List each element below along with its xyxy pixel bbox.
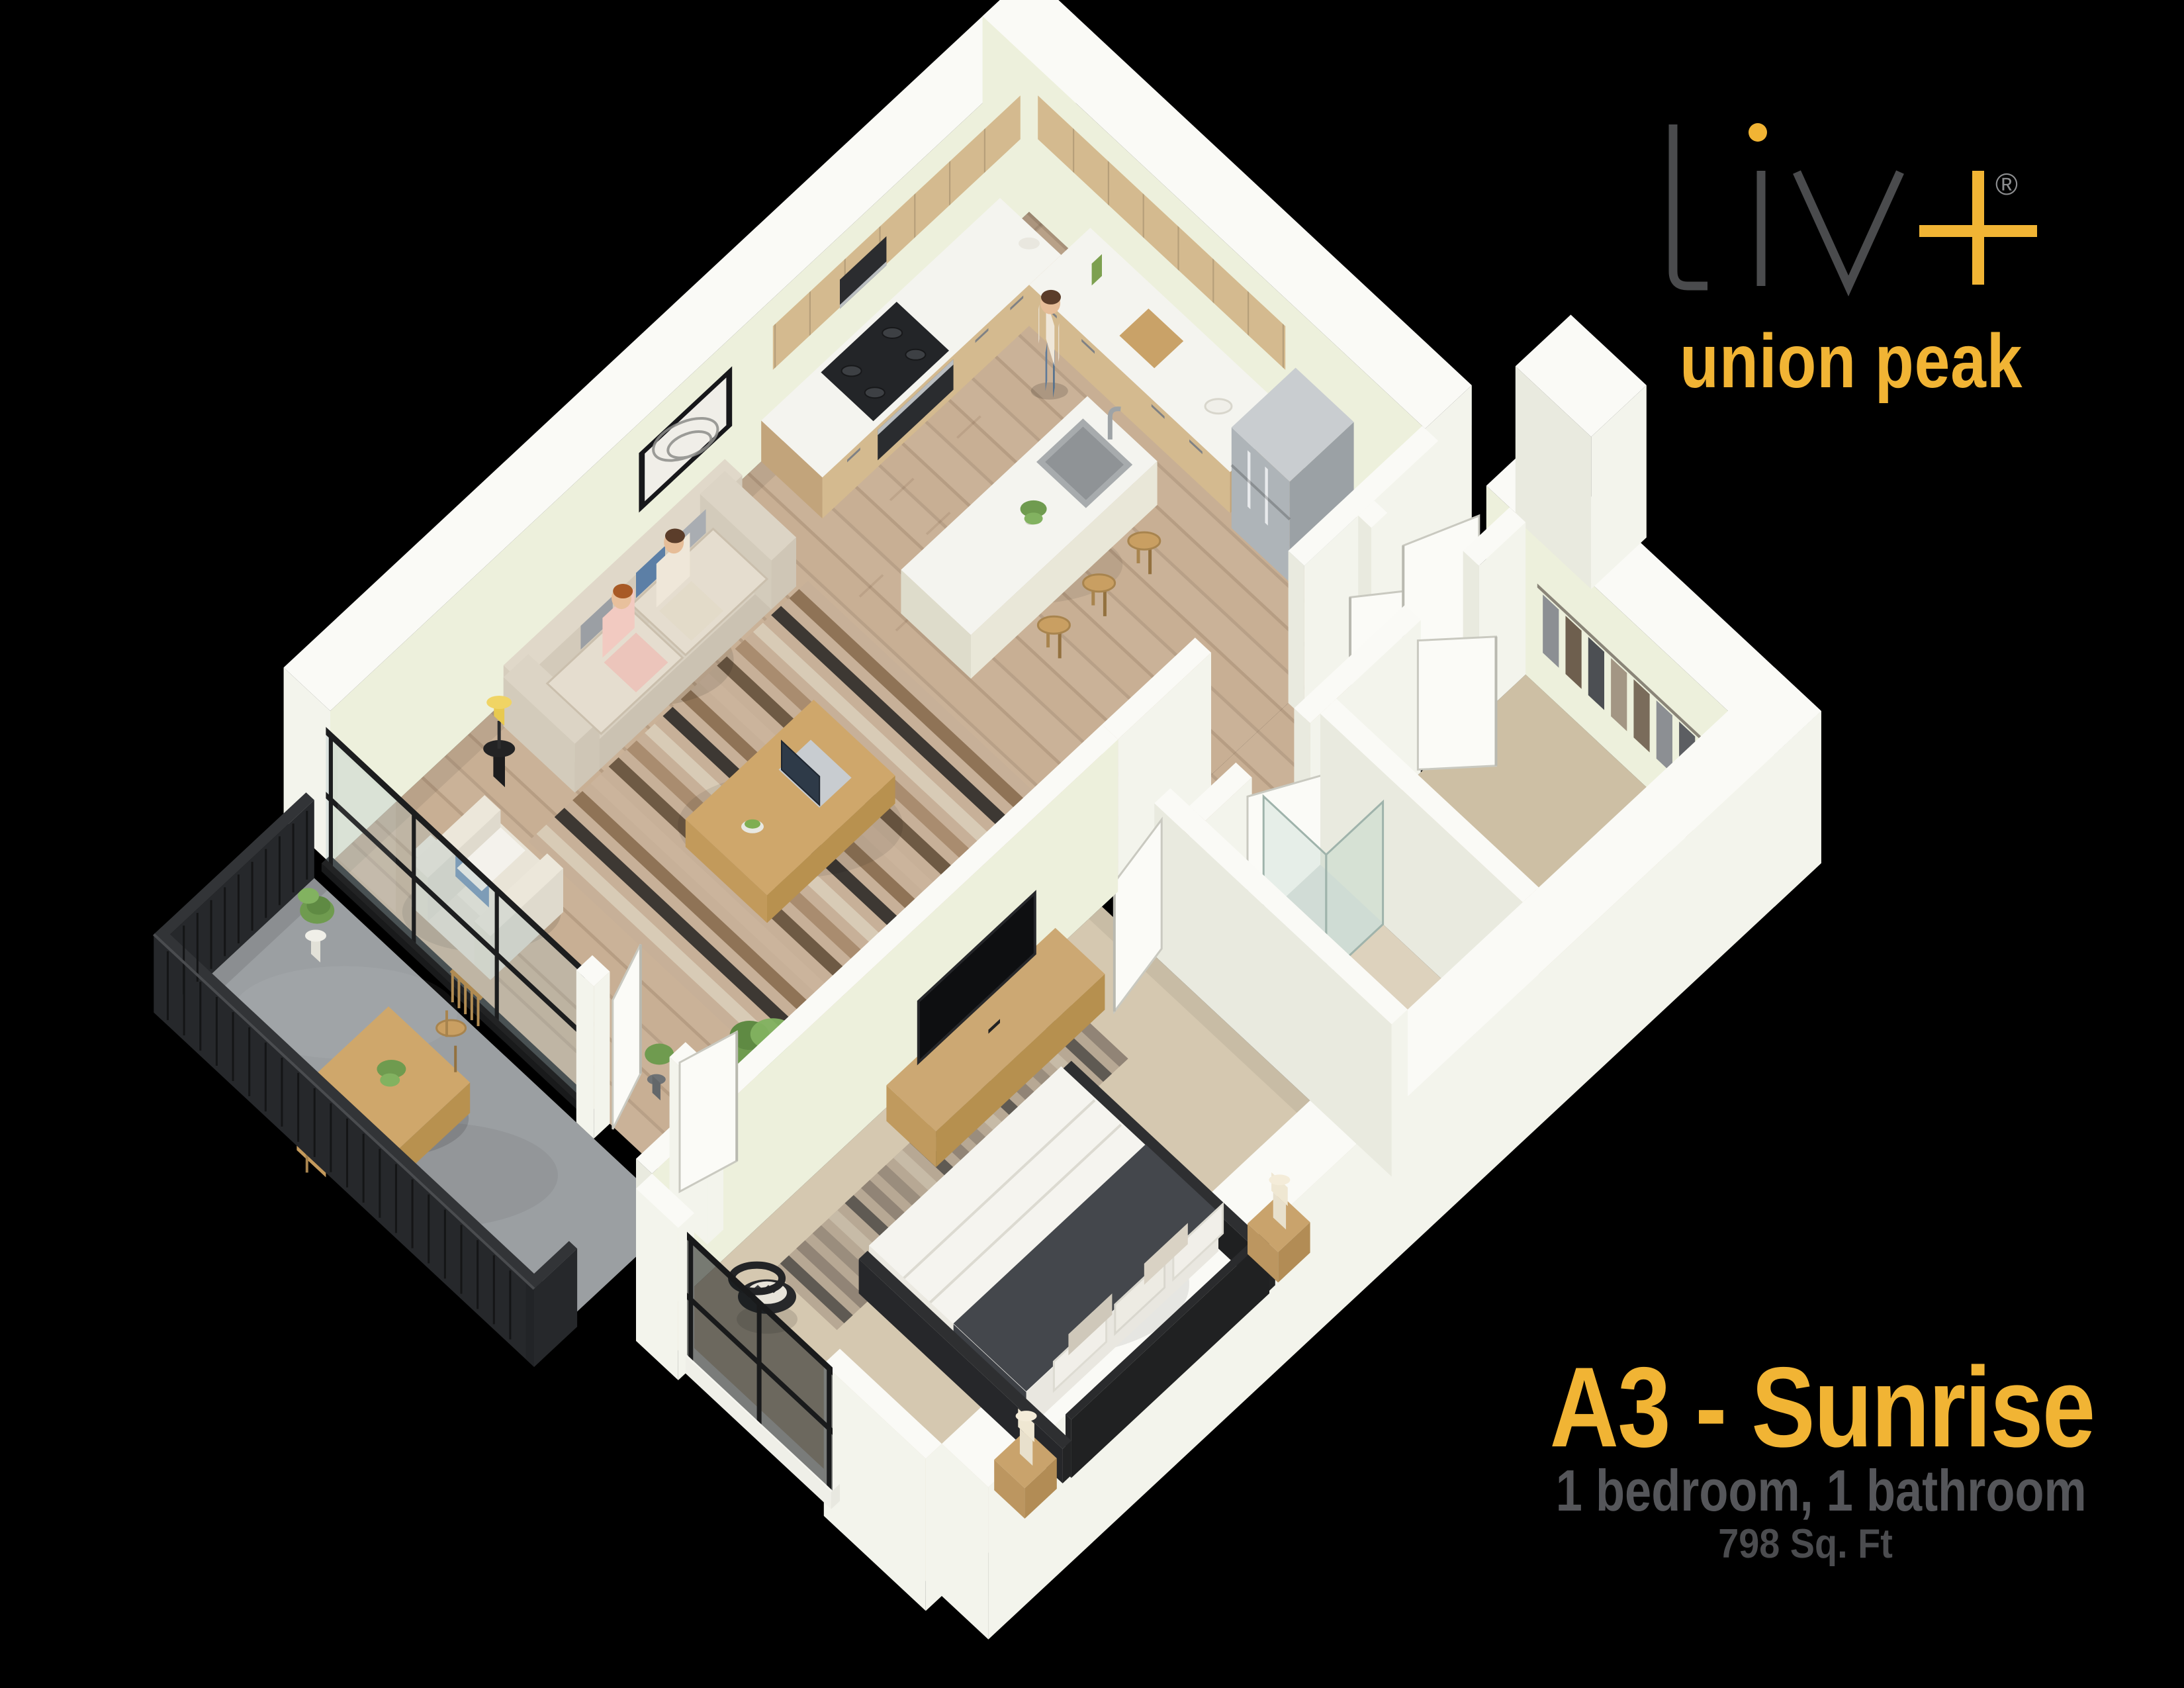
unit-details: 1 bedroom, 1 bathroom: [1556, 1462, 2055, 1520]
brand-tagline: union peak: [1680, 316, 2013, 407]
poster-background: liv+ ® union peak A3 - Sunrise 1 bedroom…: [0, 0, 2184, 1688]
registered-mark: ®: [1995, 167, 2018, 201]
unit-plate: A3 - Sunrise 1 bedroom, 1 bathroom 798 S…: [1501, 1344, 2110, 1582]
brand-logo: liv+ ® union peak: [1655, 119, 2105, 430]
unit-area: 798 Sq. Ft: [1531, 1524, 2079, 1565]
logo-plus-icon: [1919, 171, 2037, 285]
logo-letter-v: [1797, 172, 1900, 286]
logo-i-dot: [1749, 123, 1767, 142]
unit-title: A3 - Sunrise: [1550, 1350, 2062, 1464]
logo-letter-l: [1673, 124, 1707, 286]
